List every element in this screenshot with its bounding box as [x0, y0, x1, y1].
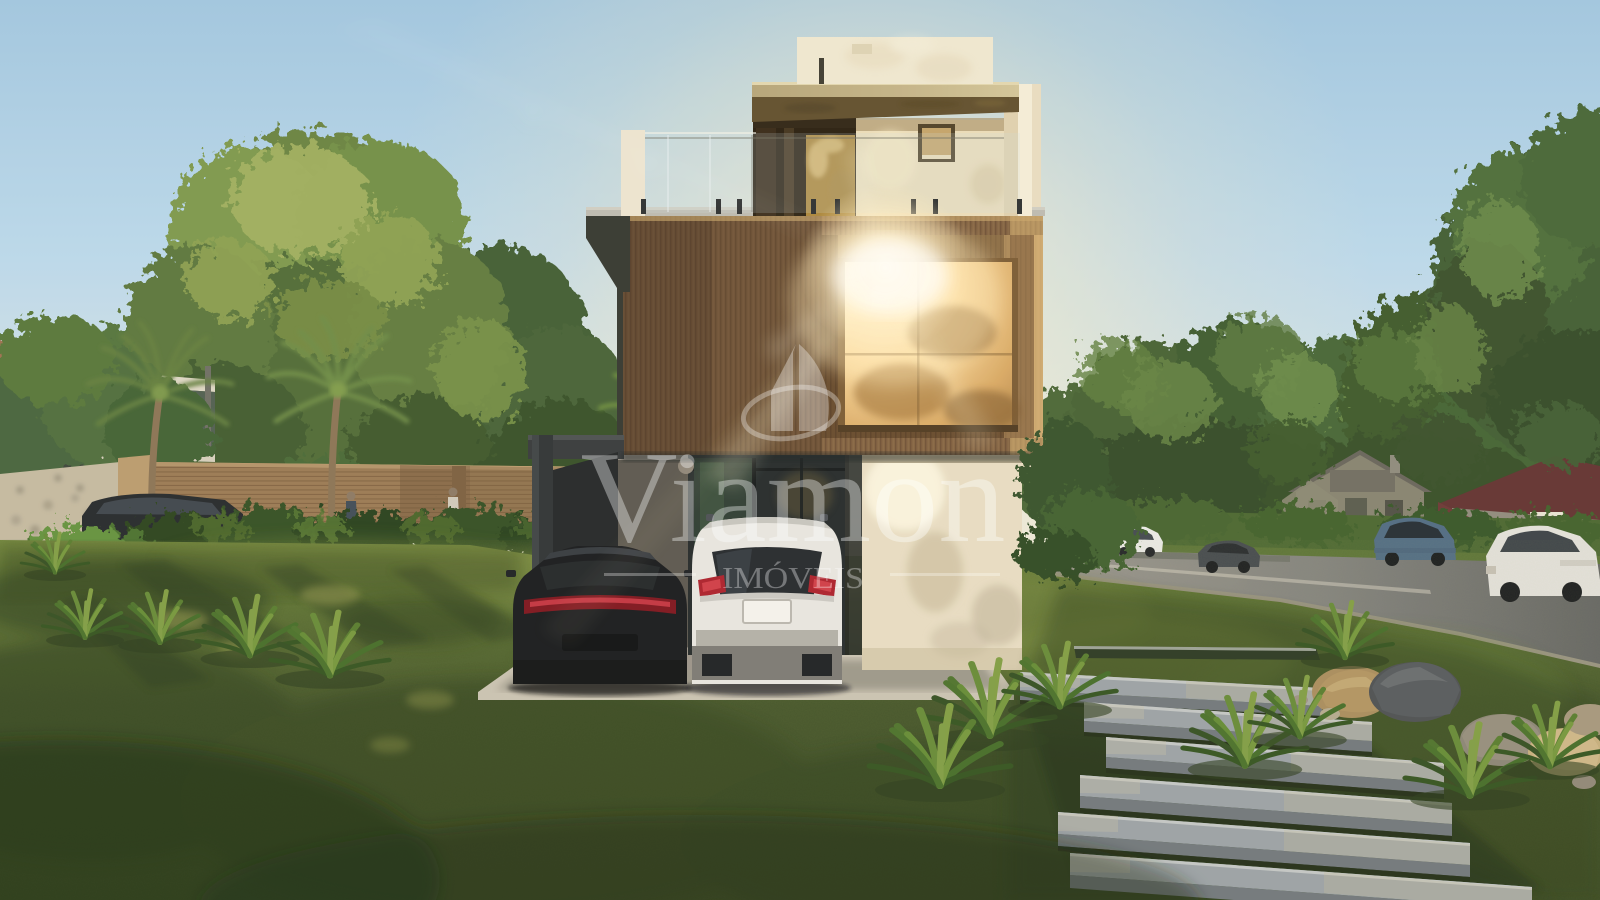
svg-text:IMÓVEIS: IMÓVEIS	[722, 560, 864, 595]
svg-text:Viamon: Viamon	[581, 425, 1006, 570]
